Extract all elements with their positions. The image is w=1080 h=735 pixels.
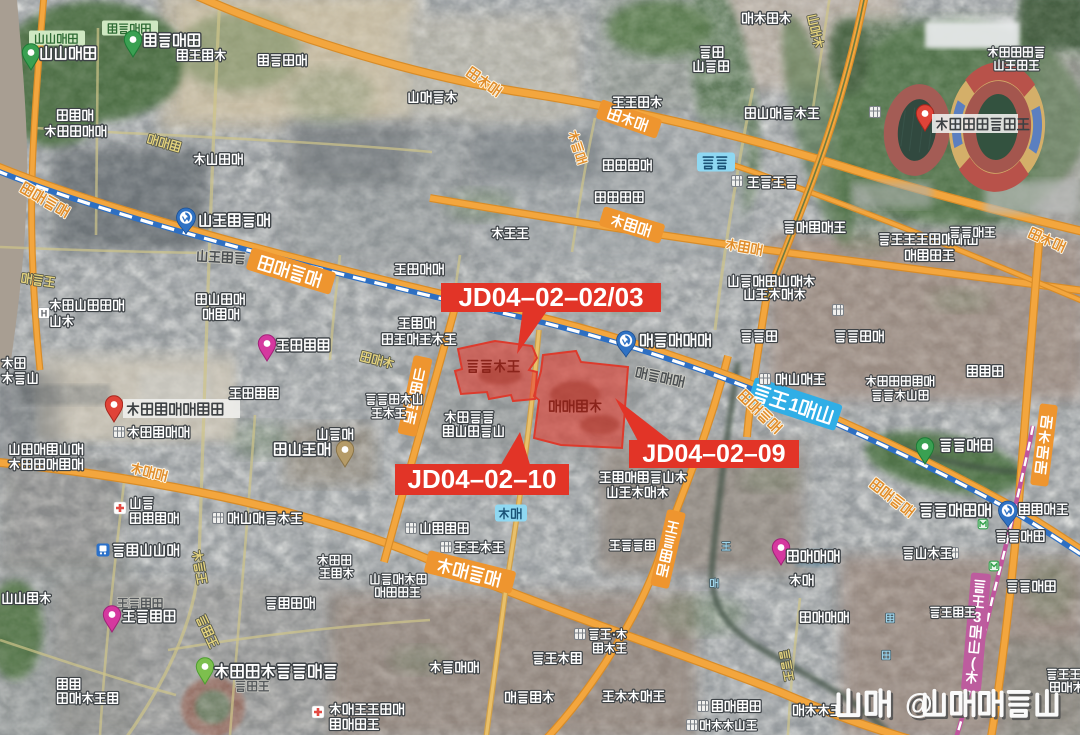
svg-text:JD04–02–10: JD04–02–10 xyxy=(408,464,557,494)
svg-text:@: @ xyxy=(905,688,933,720)
svg-text:JD04–02–09: JD04–02–09 xyxy=(642,440,785,468)
svg-text:·: · xyxy=(612,627,616,641)
svg-text:H: H xyxy=(41,309,48,319)
svg-text:JD04–02–02/03: JD04–02–02/03 xyxy=(458,282,643,312)
